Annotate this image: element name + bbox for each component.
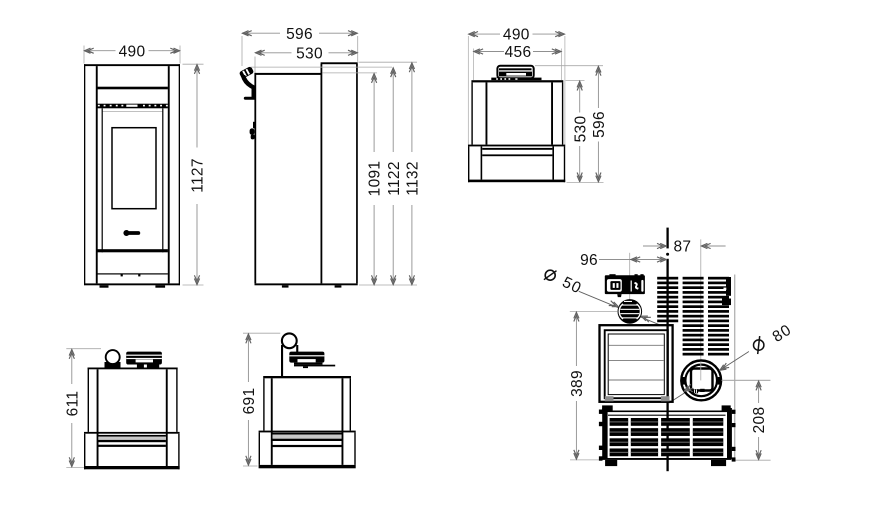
svg-text:490: 490 (119, 43, 146, 60)
svg-text:456: 456 (505, 44, 532, 61)
svg-text:1091: 1091 (367, 161, 384, 197)
svg-text:1132: 1132 (404, 161, 421, 196)
svg-text:490: 490 (503, 27, 530, 44)
svg-text:530: 530 (572, 116, 589, 143)
svg-text:530: 530 (296, 45, 323, 62)
svg-text:596: 596 (286, 26, 313, 43)
svg-text:596: 596 (591, 111, 608, 138)
svg-text:87: 87 (673, 239, 691, 256)
svg-text:691: 691 (241, 388, 258, 415)
svg-text:1127: 1127 (190, 158, 207, 193)
svg-text:611: 611 (64, 391, 81, 417)
svg-text:389: 389 (569, 370, 586, 397)
svg-text:96: 96 (580, 252, 598, 269)
svg-text:1122: 1122 (386, 161, 403, 196)
svg-text:208: 208 (751, 407, 768, 434)
